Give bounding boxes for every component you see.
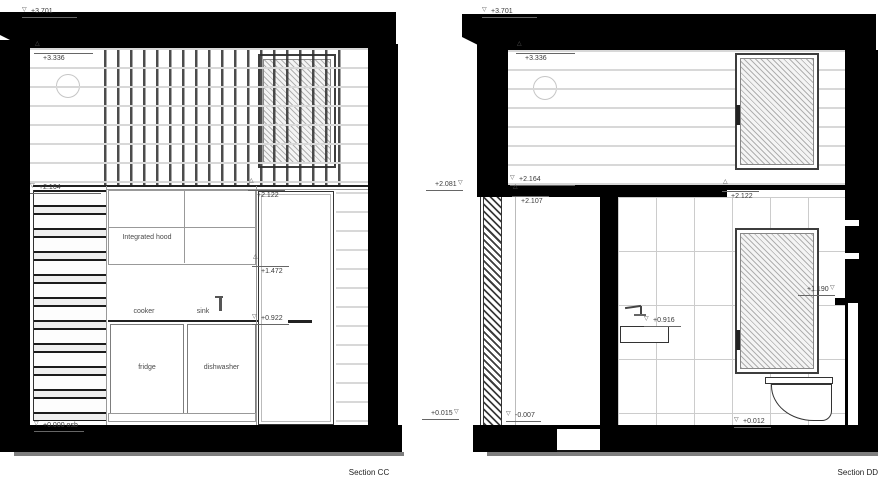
dd-level-loft-exterior: +2.081 ▽	[426, 173, 463, 191]
dd-level-ceiling: △ +3.336	[516, 47, 575, 65]
level-marker-down-icon: ▽	[506, 411, 511, 417]
dd-slab-shadow	[487, 452, 878, 456]
dd-level-exterior-floor: +0.015 ▽	[422, 402, 459, 420]
dd-level-window-sill: +1.190 ▽	[798, 278, 835, 296]
level-marker-down-icon: ▽	[830, 285, 835, 291]
dd-wall-face-line	[480, 197, 481, 425]
level-text: -0.007	[506, 412, 541, 422]
dd-level-floor: -0.007 ▽	[506, 404, 541, 422]
dd-loft-window	[735, 53, 819, 170]
level-marker-down-icon: ▽	[510, 175, 515, 181]
level-marker-up-icon: △	[513, 184, 518, 190]
dd-bathroom-window-handle	[736, 330, 740, 350]
level-text: +2.164	[510, 176, 575, 186]
drawing-canvas: Integrated hood cooker sink fridge dishw…	[0, 0, 878, 479]
dd-level-roof: +3.701 ▽	[482, 0, 537, 18]
level-marker-down-icon: ▽	[454, 409, 459, 415]
level-text: +3.701	[482, 8, 537, 18]
dd-level-loft-floor: +2.164 ▽	[510, 168, 575, 186]
level-marker-down-icon: ▽	[458, 180, 463, 186]
dd-level-loft-underside: △ +2.107	[512, 190, 549, 208]
dd-loft-window-glass	[740, 58, 814, 165]
dd-partition-wall	[600, 197, 618, 425]
level-marker-down-icon: ▽	[644, 316, 649, 322]
dd-room-inner-line	[515, 197, 516, 425]
level-marker-up-icon: △	[723, 179, 728, 185]
dd-wall-slot	[848, 303, 858, 425]
dd-toilet-seat	[765, 377, 833, 384]
dd-floor-slab	[473, 425, 878, 452]
dd-roof	[462, 14, 876, 50]
level-text: +2.122	[722, 191, 759, 201]
dd-bathroom-window	[735, 228, 819, 374]
dd-cut-wall-hatch	[483, 197, 502, 425]
level-text: +3.336	[516, 53, 575, 63]
dd-left-wall	[477, 44, 508, 197]
dd-wall-notch-1	[845, 220, 859, 226]
level-text: +0.916	[644, 317, 681, 327]
section-dd-caption: Section DD	[800, 468, 878, 477]
dd-level-bath-ceiling: △ +2.122	[722, 185, 759, 203]
level-marker-up-icon: △	[517, 41, 522, 47]
dd-level-basin: +0.916 ▽	[644, 309, 681, 327]
dd-loft-window-handle	[736, 105, 740, 125]
dd-level-toilet: +0.012 ▽	[734, 410, 771, 428]
section-dd-drawing: +3.701 ▽ △ +3.336 +2.081 ▽ +2.164 ▽ △ +2…	[0, 0, 878, 479]
dd-slab-opening	[557, 429, 600, 452]
level-marker-down-icon: ▽	[734, 417, 739, 423]
dd-bathroom-window-glass	[740, 233, 814, 369]
dd-wall-notch-2	[845, 253, 859, 259]
dd-basin-counter	[620, 326, 669, 343]
level-marker-down-icon: ▽	[482, 7, 487, 13]
level-text: +0.012	[734, 418, 771, 428]
level-text: +2.107	[512, 196, 549, 206]
